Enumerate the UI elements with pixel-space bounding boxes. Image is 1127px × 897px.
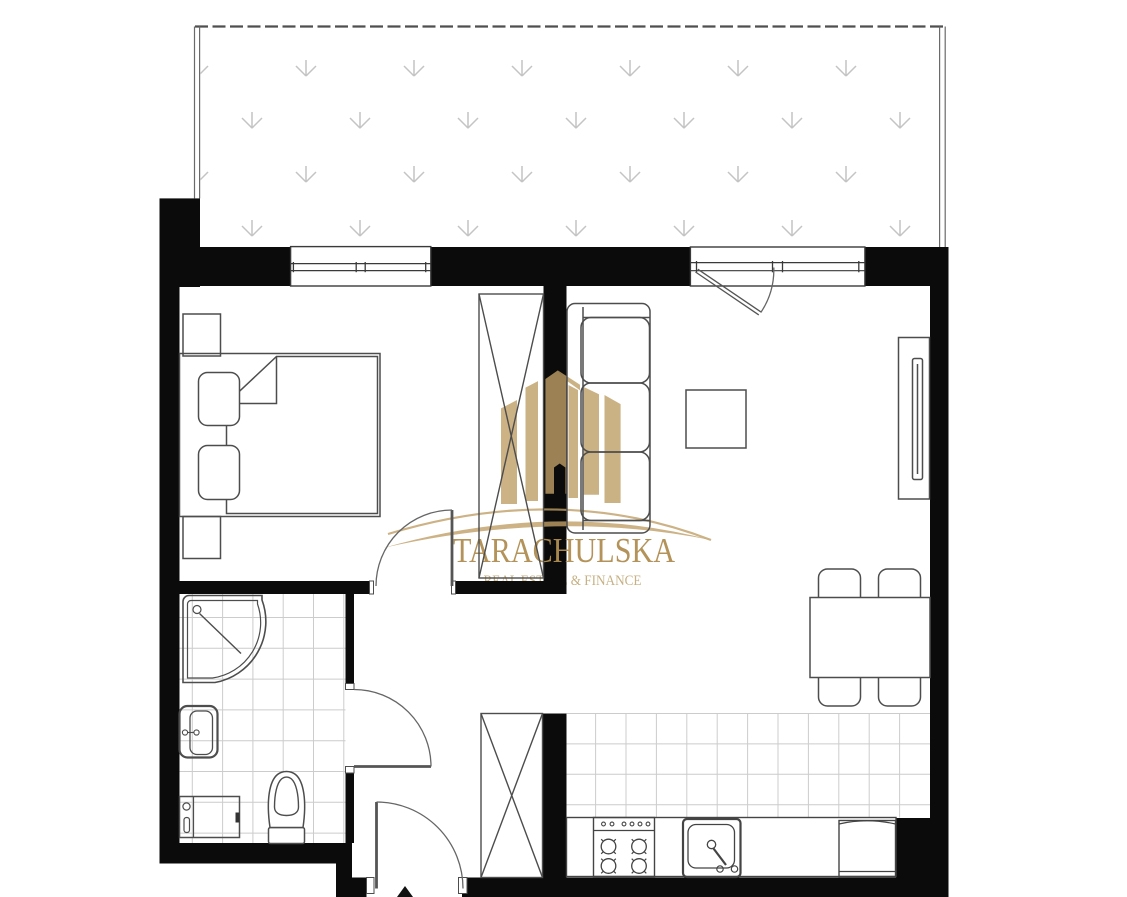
svg-text:TARACHULSKA: TARACHULSKA xyxy=(453,531,676,570)
